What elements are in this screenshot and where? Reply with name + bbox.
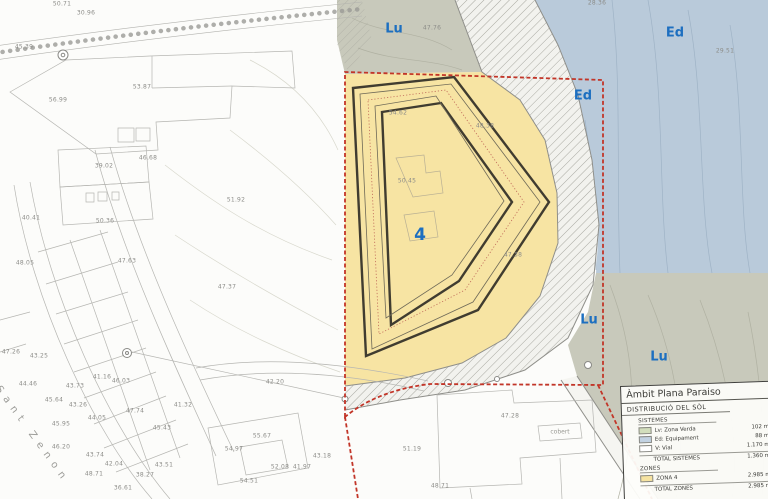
- elevation-label: 43.25: [30, 353, 48, 360]
- elevation-label: 47.26: [2, 349, 20, 356]
- zone-label-4: 4: [414, 225, 426, 245]
- elevation-label: 50.45: [398, 178, 416, 185]
- legend-total-value: 1.360 m2: [747, 453, 768, 460]
- elevation-label: 54.51: [240, 478, 258, 485]
- elevation-label: 56.99: [49, 97, 67, 104]
- legend-row-value: 1.170 m2: [747, 441, 768, 448]
- legend-row-value: 88 m2: [755, 432, 768, 439]
- elevation-label: 46.68: [139, 155, 157, 162]
- legend-row-value: 2.985 m2: [748, 471, 768, 478]
- legend-row-label: V: Vial: [655, 445, 672, 452]
- legend-section-title: ZONES: [640, 464, 718, 474]
- elevation-label: 54.97: [225, 446, 243, 453]
- elevation-label: 38.27: [136, 472, 154, 479]
- zone-label-lu: Lu: [580, 313, 598, 328]
- legend-swatch: [640, 475, 653, 482]
- elevation-label: 50.71: [53, 1, 71, 8]
- elevation-label: 28.36: [588, 0, 606, 7]
- elevation-label: 36.61: [114, 485, 132, 492]
- legend-row-label: Lv: Zona Verda: [654, 426, 695, 433]
- elevation-label: 42.04: [105, 461, 123, 468]
- elevation-label: 45.64: [45, 397, 63, 404]
- elevation-label: 39.02: [95, 163, 113, 170]
- elevation-label: 55.67: [253, 433, 271, 440]
- legend-row-value: 102 m2: [751, 423, 768, 430]
- elevation-label: 48.05: [16, 260, 34, 267]
- elevation-label: 44.05: [88, 415, 106, 422]
- legend-section-title: SISTEMES: [638, 416, 716, 426]
- legend-swatch: [638, 427, 651, 434]
- elevation-label: 47.28: [501, 413, 519, 420]
- elevation-label: 51.19: [403, 446, 421, 453]
- zone-label-ed: Ed: [574, 89, 592, 104]
- elevation-label: 47.76: [423, 25, 441, 32]
- elevation-label: 45.95: [52, 421, 70, 428]
- elevation-label: 54.62: [389, 110, 407, 117]
- elevation-label: 46.20: [52, 444, 70, 451]
- elevation-label: 43.74: [86, 452, 104, 459]
- elevation-label: 50.36: [96, 218, 114, 225]
- elevation-label: 46.03: [112, 378, 130, 385]
- legend-row-label: ZONA 4: [656, 475, 677, 482]
- elevation-label: 43.26: [69, 402, 87, 409]
- legend-total-label: TOTAL ZONES: [655, 486, 694, 493]
- legend-total-label: TOTAL SISTEMES: [653, 455, 700, 463]
- elevation-label: 47.74: [126, 408, 144, 415]
- elevation-label: 42.20: [266, 379, 284, 386]
- elevation-label: 41.32: [174, 402, 192, 409]
- legend-sections: SISTEMESLv: Zona Verda102 m2Ed: Equipame…: [622, 414, 768, 494]
- legend-section-zones: ZONESZONA 42.985 m2TOTAL ZONES2.985 m2: [640, 462, 768, 494]
- legend-panel: Àmbit Plana Paraiso DISTRIBUCIÓ DEL SÒL …: [620, 380, 768, 499]
- elevation-label: 53.87: [133, 84, 151, 91]
- elevation-label: 47.63: [118, 258, 136, 265]
- elevation-label: 47.37: [218, 284, 236, 291]
- legend-swatch: [639, 445, 652, 452]
- zone-label-lu: Lu: [650, 350, 668, 365]
- misc-label: cobert: [550, 429, 569, 436]
- elevation-label: 51.92: [227, 197, 245, 204]
- plan-map: 50.7130.9645.3956.9953.8746.6839.0240.41…: [0, 0, 768, 499]
- elevation-label: 48.38: [476, 123, 494, 130]
- elevation-label: 41.97: [293, 464, 311, 471]
- elevation-label: 30.96: [77, 10, 95, 17]
- elevation-label: 44.46: [19, 381, 37, 388]
- elevation-label: 45.43: [153, 425, 171, 432]
- elevation-label: 40.41: [22, 215, 40, 222]
- zone-label-lu: Lu: [385, 22, 403, 37]
- legend-subtitle: DISTRIBUCIÓ DEL SÒL: [622, 400, 730, 416]
- elevation-label: 45.39: [15, 44, 33, 51]
- legend-total-row: TOTAL ZONES2.985 m2: [640, 480, 768, 493]
- elevation-label: 47.38: [504, 252, 522, 259]
- elevation-label: 48.71: [431, 483, 449, 490]
- elevation-label: 52.08: [271, 464, 289, 471]
- elevation-label: 48.71: [85, 471, 103, 478]
- legend-total-row: TOTAL SISTEMES1.360 m2: [639, 450, 768, 463]
- elevation-label: 43.51: [155, 462, 173, 469]
- elevation-label: 43.73: [66, 383, 84, 390]
- elevation-label: 29.51: [716, 48, 734, 55]
- elevation-label: 43.18: [313, 453, 331, 460]
- legend-row-label: Ed: Equipament: [655, 435, 699, 443]
- legend-total-value: 2.985 m2: [748, 483, 768, 490]
- legend-section-sistemes: SISTEMESLv: Zona Verda102 m2Ed: Equipame…: [638, 414, 768, 464]
- zone-label-ed: Ed: [666, 26, 684, 41]
- legend-swatch: [639, 436, 652, 443]
- elevation-label: 41.16: [93, 374, 111, 381]
